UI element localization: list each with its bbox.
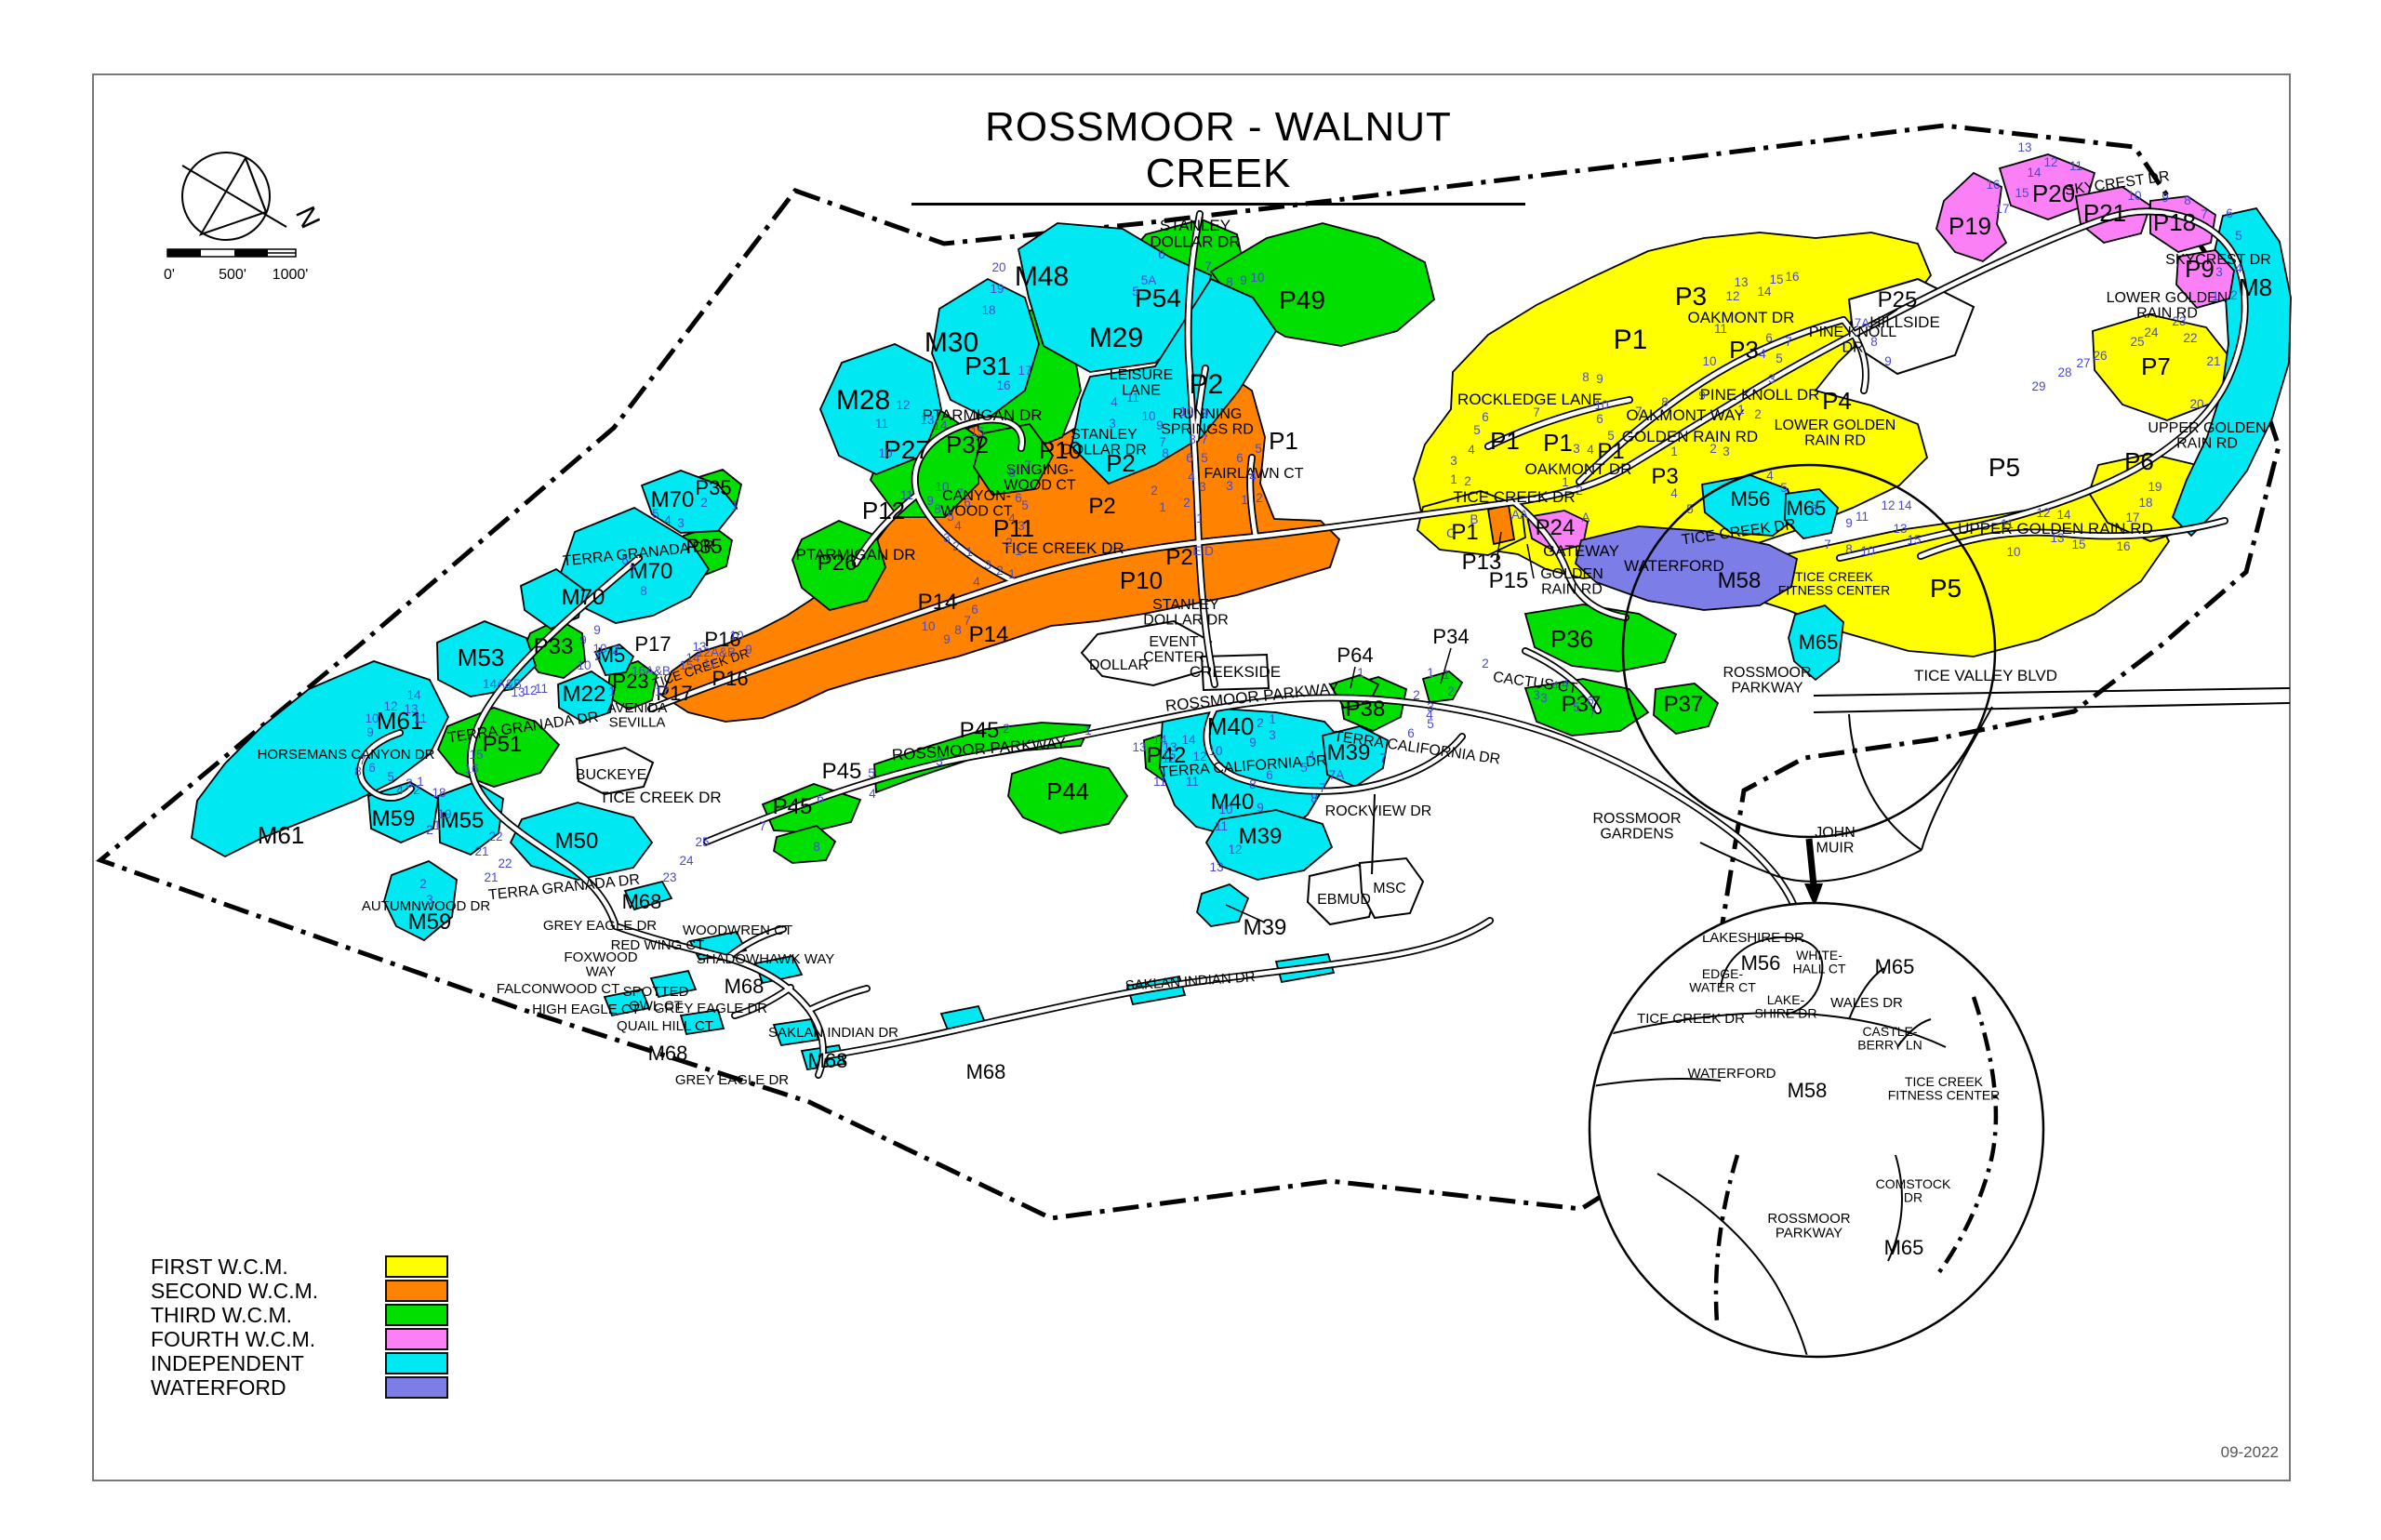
unit-number: 4 bbox=[1759, 347, 1766, 361]
unit-number: 8 bbox=[1008, 466, 1016, 480]
region-label: P64 bbox=[1337, 644, 1373, 667]
unit-number: 1 bbox=[1450, 472, 1457, 486]
street-label: WOODWREN CT bbox=[683, 923, 792, 938]
inset-label: ROSSMOORPARKWAY bbox=[1767, 1211, 1850, 1241]
legend-swatch-fourth bbox=[385, 1328, 448, 1350]
unit-number: 17 bbox=[1018, 364, 1031, 378]
unit-number: 1 bbox=[1562, 475, 1569, 489]
unit-number: 5 bbox=[387, 770, 394, 784]
unit-number: 2 bbox=[1003, 722, 1010, 736]
unit-number: 10 bbox=[1218, 803, 1232, 816]
region-label: M59 bbox=[372, 806, 416, 831]
unit-number: 1 bbox=[608, 684, 616, 698]
region-label: P14 bbox=[918, 590, 958, 615]
unit-number: E bbox=[1192, 544, 1201, 558]
inset-label: WALES DR bbox=[1830, 995, 1903, 1011]
region-label: P36 bbox=[1550, 625, 1593, 653]
unit-number: 2 bbox=[700, 496, 708, 510]
unit-number: 1 bbox=[2212, 289, 2219, 303]
region-label: P2 bbox=[1088, 494, 1115, 519]
region-label: M53 bbox=[458, 644, 505, 671]
unit-number: 4 bbox=[1111, 395, 1118, 409]
region-label: P49 bbox=[1279, 285, 1325, 314]
unit-number: 8 bbox=[1870, 335, 1878, 349]
unit-number: 5A bbox=[1141, 273, 1157, 287]
unit-number: 7 bbox=[2201, 207, 2208, 221]
street-label: OAKMONT DR bbox=[1688, 309, 1795, 326]
landmark-label: JOHNMUIR bbox=[1815, 825, 1856, 856]
region-label: P33 bbox=[534, 634, 574, 659]
street-label: PTARMIGAN DR bbox=[795, 546, 915, 564]
legend-row: FIRST W.C.M. bbox=[151, 1255, 448, 1279]
region-label: P19 bbox=[1949, 212, 1991, 240]
unit-number: 8 bbox=[1845, 542, 1853, 556]
unit-number: 1 bbox=[1084, 724, 1092, 737]
legend-swatch-waterford bbox=[385, 1376, 448, 1399]
scale-label-0: 0' bbox=[164, 267, 175, 283]
street-label: OAKMONT DR bbox=[1525, 460, 1632, 478]
region-label: P38 bbox=[1346, 697, 1386, 722]
unit-number: 3 bbox=[1540, 691, 1548, 705]
unit-number: 8 bbox=[934, 502, 941, 516]
unit-number: 13 bbox=[2017, 140, 2031, 154]
landmark-label: HILLSIDE bbox=[1869, 313, 1940, 331]
unit-number: 1 bbox=[1443, 668, 1450, 682]
region-label: P18 bbox=[2153, 208, 2196, 236]
region-label: P15 bbox=[1489, 568, 1529, 593]
unit-number: 4 bbox=[1188, 470, 1195, 484]
region-M39-c bbox=[1197, 884, 1248, 926]
unit-number: 1 bbox=[1269, 712, 1276, 726]
unit-number: 3 bbox=[984, 558, 991, 572]
unit-number: 4 bbox=[1587, 443, 1594, 457]
compass-north-label: N bbox=[289, 202, 326, 233]
unit-number: 3 bbox=[2215, 265, 2223, 279]
unit-number: 17 bbox=[1995, 202, 2009, 216]
unit-number: 2 bbox=[1576, 484, 1583, 498]
unit-number: 9 bbox=[1596, 372, 1603, 386]
region-label: M68 bbox=[725, 975, 765, 998]
unit-number: 14 bbox=[1757, 285, 1772, 299]
unit-number: 13 bbox=[920, 413, 934, 427]
unit-number: 5 bbox=[1686, 502, 1694, 516]
unit-number: 2 bbox=[952, 539, 960, 553]
unit-number: 6 bbox=[1407, 726, 1415, 740]
unit-number: 9 bbox=[579, 633, 587, 647]
unit-number: 4 bbox=[1562, 677, 1569, 691]
unit-number: 18 bbox=[981, 303, 995, 317]
unit-number: 3 bbox=[1226, 479, 1233, 493]
unit-number: 5 bbox=[1427, 717, 1434, 731]
unit-number: 3 bbox=[943, 531, 951, 545]
unit-number: 14 bbox=[933, 418, 948, 432]
unit-number: 1 bbox=[1008, 567, 1016, 581]
street-label: AVENIDASEVILLA bbox=[607, 700, 668, 731]
unit-number: 7 bbox=[629, 564, 636, 577]
unit-number: 7 bbox=[1204, 259, 1212, 273]
unit-number: 5 bbox=[1776, 352, 1783, 365]
region-label: M48 bbox=[1015, 261, 1069, 292]
scale-bar: 0'500'1000' bbox=[164, 249, 308, 283]
street-label: SAKLAN INDIAN DR bbox=[1124, 969, 1256, 994]
street-label: RED WING CT bbox=[611, 937, 705, 953]
unit-number: 6 bbox=[1266, 768, 1273, 782]
unit-number: 11 bbox=[1153, 775, 1166, 789]
unit-number: 7 bbox=[956, 486, 964, 500]
region-label: M68 bbox=[622, 890, 662, 913]
unit-number: 14 bbox=[1181, 733, 1196, 747]
legend-label: INDEPENDENT bbox=[151, 1351, 385, 1376]
unit-number: 6 bbox=[1765, 331, 1773, 345]
unit-number: 20 bbox=[991, 260, 1005, 274]
unit-number: 1 bbox=[1159, 500, 1166, 514]
unit-number: 9 bbox=[366, 725, 374, 739]
street-label: GREY EAGLE DR bbox=[675, 1072, 789, 1088]
unit-number: 19 bbox=[2148, 480, 2162, 494]
legend-swatch-second bbox=[385, 1280, 448, 1302]
unit-number: 21 bbox=[484, 870, 498, 884]
region-label: M8 bbox=[2239, 273, 2272, 301]
unit-number: 2 bbox=[996, 564, 1004, 577]
unit-number: 1 bbox=[965, 545, 973, 559]
unit-number: 6 bbox=[971, 603, 978, 617]
unit-number: 10 bbox=[935, 480, 949, 494]
legend: FIRST W.C.M.SECOND W.C.M.THIRD W.C.M.FOU… bbox=[151, 1255, 448, 1400]
region-label: M39 bbox=[1244, 915, 1287, 940]
scale-bar-seg bbox=[167, 249, 201, 257]
unit-number: 6 bbox=[1596, 412, 1603, 426]
unit-number: 1 bbox=[1241, 493, 1248, 507]
unit-number: 6 bbox=[1810, 502, 1817, 516]
region-label: M22 bbox=[563, 682, 606, 707]
region-label: M40 bbox=[1207, 712, 1255, 740]
street-label: GREY EAGLE DR bbox=[543, 918, 657, 934]
unit-number: 3 bbox=[936, 754, 943, 768]
unit-number: 10 bbox=[1208, 744, 1222, 758]
unit-number: 17 bbox=[655, 684, 669, 698]
unit-number: 24 bbox=[679, 854, 694, 868]
unit-number: 9 bbox=[1156, 418, 1164, 432]
street-label: STANLEYDOLLAR DR bbox=[1061, 427, 1147, 458]
unit-number: 8 bbox=[1226, 275, 1233, 289]
unit-number: 2 bbox=[1151, 484, 1158, 498]
unit-number: 11 bbox=[2069, 159, 2082, 173]
unit-number: 8 bbox=[640, 584, 647, 598]
unit-number: 5 bbox=[652, 507, 659, 521]
unit-number: 11 bbox=[1856, 510, 1869, 524]
unit-number: 29 bbox=[2031, 379, 2045, 393]
unit-number: 10 bbox=[1250, 271, 1264, 285]
landmark-label: EBMUD bbox=[1317, 892, 1371, 908]
unit-number: 7 bbox=[1319, 781, 1326, 795]
unit-number: 2 bbox=[594, 649, 602, 663]
region-label: M68 bbox=[966, 1060, 1006, 1083]
unit-number: 4 bbox=[1008, 511, 1016, 525]
region-label: P10 bbox=[1120, 566, 1163, 594]
unit-number: 11 bbox=[1186, 775, 1199, 789]
region-label: P14 bbox=[969, 622, 1009, 647]
unit-number: 8 bbox=[1582, 370, 1590, 384]
unit-number: 13 bbox=[1893, 522, 1907, 536]
street-label: GOLDENRAIN RD bbox=[1540, 566, 1603, 598]
region-label: P21 bbox=[2083, 199, 2126, 227]
unit-number: 1 bbox=[1357, 666, 1364, 680]
region-P13 bbox=[1488, 505, 1514, 544]
unit-number: 6 bbox=[1587, 694, 1594, 708]
unit-number: 9 bbox=[1845, 516, 1853, 530]
street-label: HIGH EAGLE CT bbox=[532, 1002, 640, 1017]
region-label: P24 bbox=[1536, 515, 1576, 540]
unit-number: 22 bbox=[488, 830, 502, 843]
unit-number: 4 bbox=[1551, 679, 1559, 693]
unit-number: 7 bbox=[1533, 405, 1540, 419]
street-label: OAKMONT WAY bbox=[1626, 406, 1744, 424]
legend-label: FIRST W.C.M. bbox=[151, 1255, 385, 1280]
unit-number: 17 bbox=[2125, 511, 2139, 524]
region-label: P2 bbox=[1190, 369, 1224, 400]
unit-number: 2 bbox=[1257, 716, 1264, 730]
landmark-label: CREEKSIDE bbox=[1190, 663, 1281, 681]
unit-number: 6 bbox=[621, 553, 629, 567]
unit-number: 4 bbox=[396, 783, 404, 797]
unit-number: 22 bbox=[2183, 331, 2197, 345]
unit-number: 9 bbox=[1884, 354, 1892, 368]
unit-number: 5 bbox=[1201, 451, 1208, 465]
unit-number: 8 bbox=[813, 840, 820, 854]
unit-number: 5 bbox=[947, 510, 954, 524]
inset-label: TICE CREEK DR bbox=[1637, 1011, 1745, 1027]
compass-needle-line bbox=[182, 166, 286, 227]
unit-number: 2 bbox=[1183, 496, 1190, 510]
unit-number: 2 bbox=[1413, 688, 1420, 702]
street-label: QUAIL HILL CT bbox=[617, 1018, 713, 1034]
inset-label: M65 bbox=[1875, 955, 1915, 978]
unit-number: 1 bbox=[1015, 544, 1022, 558]
unit-number: 2 bbox=[1482, 657, 1489, 670]
unit-number: 24 bbox=[2144, 325, 2159, 339]
unit-number: 5 bbox=[1300, 761, 1308, 775]
region-label: P25 bbox=[1878, 287, 1918, 312]
unit-number: 3 bbox=[1269, 728, 1276, 742]
unit-number: 13 bbox=[1132, 740, 1146, 754]
legend-row: INDEPENDENT bbox=[151, 1351, 448, 1375]
legend-row: WATERFORD bbox=[151, 1375, 448, 1400]
compass: N bbox=[182, 153, 326, 240]
region-label: P31 bbox=[964, 352, 1011, 380]
region-label: M56 bbox=[1731, 487, 1771, 511]
unit-number: 9 bbox=[1257, 801, 1264, 815]
scale-label-500: 500' bbox=[219, 267, 246, 283]
region-label: P45 bbox=[773, 794, 813, 819]
unit-number: 7 bbox=[1635, 405, 1643, 418]
region-label: P1 bbox=[1543, 429, 1573, 457]
unit-number: 18 bbox=[432, 786, 446, 800]
street-label: STANLEYDOLLAR DR bbox=[1150, 217, 1240, 251]
unit-number: 3 bbox=[1723, 445, 1730, 458]
street-label: STANLEYDOLLAR DR bbox=[1143, 597, 1229, 629]
unit-number: 16 bbox=[1785, 270, 1799, 284]
landmark-label: ROSSMOORGARDENS bbox=[1592, 811, 1681, 843]
region-label: P45 bbox=[822, 759, 862, 784]
unit-number: 2 bbox=[1464, 474, 1471, 488]
unit-number: 11 bbox=[414, 711, 427, 725]
unit-number: 4 bbox=[869, 787, 876, 801]
unit-number: 2 bbox=[612, 643, 619, 657]
unit-number: 13 bbox=[692, 640, 706, 654]
region-label: P34 bbox=[1432, 625, 1469, 648]
unit-number: 10 bbox=[577, 658, 591, 672]
legend-label: SECOND W.C.M. bbox=[151, 1279, 385, 1304]
legend-row: SECOND W.C.M. bbox=[151, 1279, 448, 1303]
unit-number: 9 bbox=[2162, 191, 2169, 205]
unit-number: 8 bbox=[1249, 777, 1257, 791]
street-label: TICE CREEK DR bbox=[599, 789, 721, 806]
unit-number: 6 bbox=[1158, 247, 1165, 261]
unit-number: 4 bbox=[1308, 749, 1315, 763]
street-label: ROCKVIEW DR bbox=[1325, 803, 1432, 819]
inset-label: M56 bbox=[1741, 951, 1781, 975]
unit-number: 7 bbox=[759, 819, 766, 833]
legend-row: FOURTH W.C.M. bbox=[151, 1327, 448, 1351]
region-label: P4 bbox=[1822, 387, 1852, 415]
unit-number: 6 bbox=[1186, 451, 1193, 465]
street-label: TICE VALLEY BLVD bbox=[1914, 667, 2057, 684]
unit-number: 4 bbox=[664, 513, 672, 527]
unit-number: 3 bbox=[1768, 372, 1776, 386]
unit-number: 7 bbox=[1379, 751, 1387, 765]
unit-number: 4 bbox=[973, 575, 980, 589]
legend-swatch-first bbox=[385, 1255, 448, 1278]
map-page: LAKESHIRE DRM56WHITE-HALL CTM65EDGE-WATE… bbox=[0, 0, 2381, 1540]
unit-number: 15 bbox=[2015, 186, 2029, 200]
unit-number: 3 bbox=[426, 893, 433, 907]
unit-number: 8 bbox=[2184, 193, 2191, 207]
date-stamp: 09-2022 bbox=[2093, 1443, 2279, 1462]
landmark-label: DOLLAR bbox=[1089, 657, 1149, 673]
unit-number: 3 bbox=[406, 777, 413, 790]
unit-number: C bbox=[1446, 526, 1456, 540]
landmark-label: WATERFORD bbox=[1624, 557, 1724, 575]
unit-number: 8 bbox=[354, 764, 362, 778]
unit-number: 4 bbox=[954, 519, 962, 533]
street-label: SAKLAN INDIAN DR bbox=[768, 1025, 898, 1041]
unit-number: 23 bbox=[2172, 314, 2186, 328]
street-label: GOLDEN RAIN RD bbox=[1622, 428, 1758, 445]
unit-number: A bbox=[1581, 511, 1590, 524]
unit-number: 3 bbox=[1109, 417, 1116, 431]
unit-number: 1 bbox=[731, 498, 738, 512]
page-title-text: ROSSMOOR - WALNUT CREEK bbox=[911, 104, 1525, 206]
unit-number: 2 bbox=[1754, 407, 1762, 421]
unit-number: 11 bbox=[703, 657, 716, 670]
unit-number: 11 bbox=[900, 488, 913, 502]
unit-number: 21 bbox=[2206, 354, 2220, 368]
unit-number: 3 bbox=[677, 516, 685, 530]
legend-label: THIRD W.C.M. bbox=[151, 1303, 385, 1328]
unit-number: 15 bbox=[679, 658, 693, 672]
unit-number: 12 bbox=[2043, 155, 2057, 169]
unit-number: 9 bbox=[1202, 406, 1209, 420]
region-label: M29 bbox=[1089, 323, 1143, 353]
unit-number: 2 bbox=[1256, 491, 1263, 505]
unit-number: 27 bbox=[2076, 356, 2090, 370]
unit-number: 5 bbox=[1607, 429, 1615, 443]
street-label: HORSEMANS CANYON DR bbox=[258, 747, 435, 763]
unit-number: 11 bbox=[1126, 391, 1139, 405]
unit-number: 13 bbox=[2050, 531, 2064, 545]
unit-number: 16 bbox=[996, 378, 1010, 392]
region-label: P3 bbox=[1675, 282, 1707, 311]
street-label: FOXWOODWAY bbox=[564, 949, 637, 980]
unit-number: 9 bbox=[1249, 736, 1257, 750]
region-label: M61 bbox=[258, 821, 305, 849]
unit-number: 7 bbox=[1589, 707, 1596, 721]
unit-number: 4 bbox=[2235, 261, 2242, 275]
unit-number: 5 bbox=[2235, 229, 2242, 243]
unit-number: 11 bbox=[1215, 819, 1228, 833]
legend-swatch-independent bbox=[385, 1352, 448, 1374]
region-label: P1 bbox=[1490, 427, 1520, 455]
unit-number: 15 bbox=[469, 748, 483, 762]
unit-number: 1 bbox=[1196, 511, 1204, 525]
unit-number: B bbox=[1470, 512, 1478, 526]
unit-number: AA bbox=[1511, 508, 1528, 522]
region-label: M50 bbox=[555, 829, 599, 854]
compass-circle bbox=[182, 153, 270, 240]
legend-label: FOURTH W.C.M. bbox=[151, 1327, 385, 1352]
unit-number: 12 bbox=[896, 398, 910, 412]
street-label: PINE KNOLL DR bbox=[1700, 386, 1820, 404]
region-label: P12 bbox=[862, 497, 905, 524]
inset-label: M58 bbox=[1788, 1079, 1828, 1102]
road-surface bbox=[809, 989, 867, 1010]
region-label: M68 bbox=[648, 1042, 688, 1065]
unit-number: 14 bbox=[2056, 508, 2071, 522]
region-label: P44 bbox=[1046, 777, 1089, 805]
unit-number: 7A bbox=[1329, 768, 1345, 782]
unit-number: 4 bbox=[1670, 486, 1678, 500]
region-label: P1 bbox=[1269, 427, 1298, 455]
unit-number: 1 bbox=[1737, 403, 1745, 417]
street-label: SHADOWHAWK WAY bbox=[697, 951, 835, 967]
unit-number: 5 bbox=[1473, 423, 1481, 437]
street-label: LOWER GOLDENRAIN RD bbox=[2107, 290, 2228, 322]
unit-number: 9 bbox=[943, 632, 951, 646]
unit-number: 10 bbox=[1594, 398, 1608, 412]
inset-detail: LAKESHIRE DRM56WHITE-HALL CTM65EDGE-WATE… bbox=[1590, 903, 2043, 1360]
street-label: ROSSMOORPARKWAY bbox=[1723, 665, 1811, 697]
unit-number: 16 bbox=[464, 762, 478, 776]
unit-number: 5 bbox=[1132, 285, 1139, 299]
unit-number: 9 bbox=[926, 494, 934, 508]
region-label: P17 bbox=[634, 632, 671, 656]
unit-number: 13 bbox=[1163, 740, 1177, 754]
unit-number: 15 bbox=[1769, 272, 1783, 286]
region-label: M28 bbox=[836, 385, 890, 416]
region-label: M68 bbox=[808, 1049, 848, 1072]
inset-label: M65 bbox=[1884, 1236, 1924, 1259]
unit-number: 12 bbox=[383, 699, 397, 713]
unit-number: 5 bbox=[1021, 498, 1029, 512]
unit-number: 11 bbox=[535, 682, 548, 696]
unit-number: D bbox=[1204, 544, 1214, 558]
inset-label: WATERFORD bbox=[1688, 1066, 1776, 1082]
unit-number: 28 bbox=[2057, 365, 2071, 379]
unit-number: 9 bbox=[1698, 389, 1706, 403]
unit-number: 2 bbox=[426, 823, 433, 837]
inset-label: CASTLE-BERRY LN bbox=[1857, 1024, 1922, 1053]
unit-number: 2 bbox=[413, 783, 420, 797]
